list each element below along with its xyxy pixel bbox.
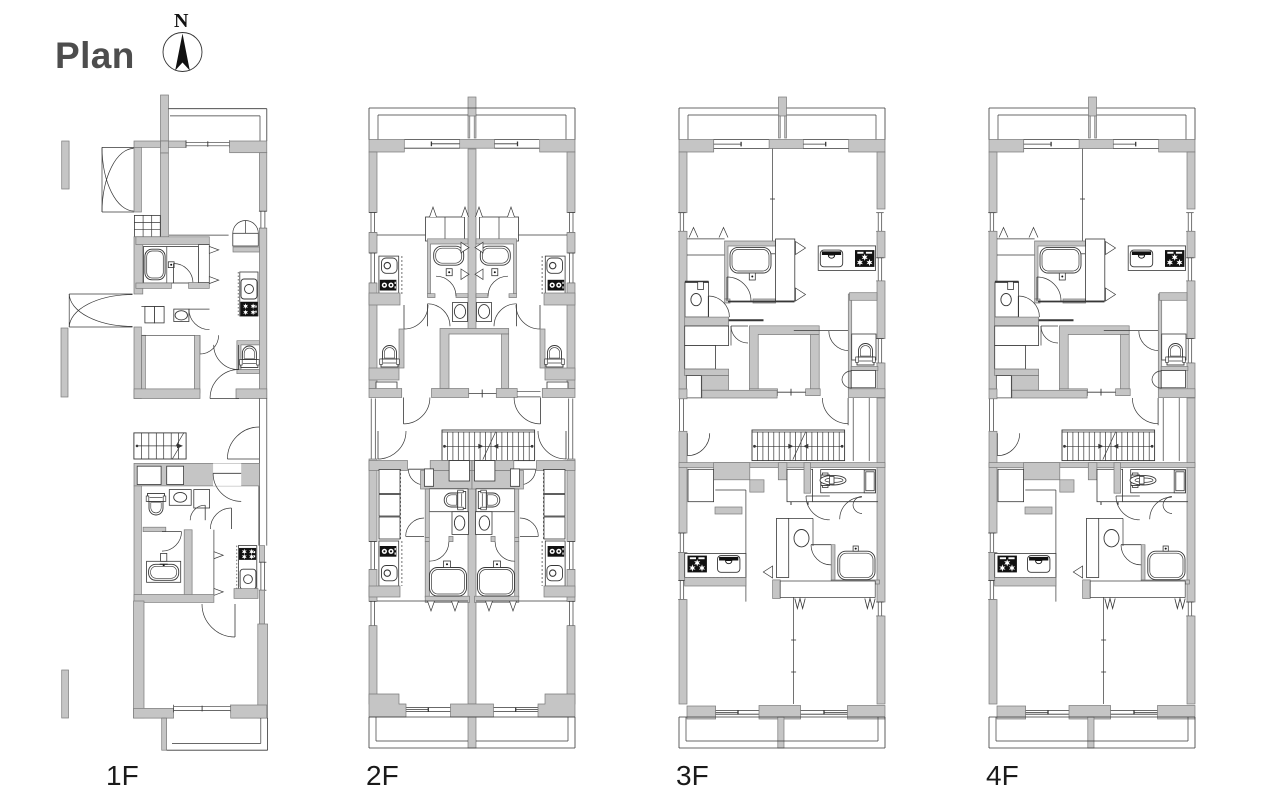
svg-text:3F: 3F — [676, 760, 709, 791]
svg-text:N: N — [174, 10, 189, 32]
svg-text:1F: 1F — [106, 760, 139, 791]
svg-text:Plan: Plan — [55, 35, 135, 76]
svg-text:2F: 2F — [366, 760, 399, 791]
svg-text:4F: 4F — [986, 760, 1019, 791]
